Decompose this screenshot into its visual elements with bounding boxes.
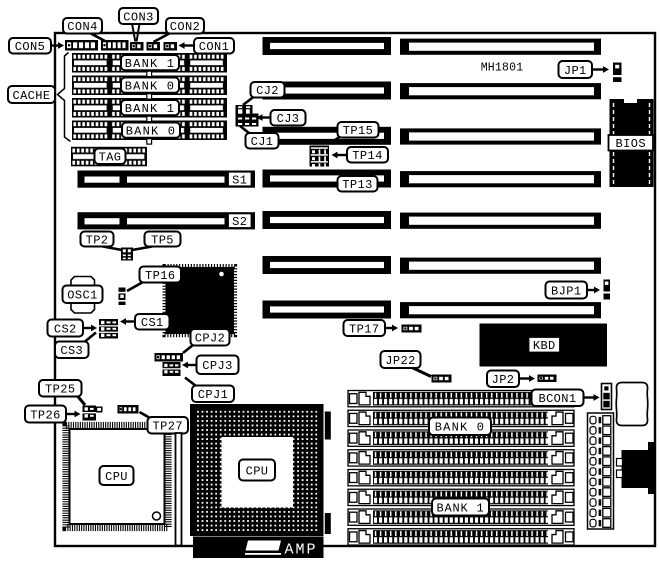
- svg-text:TP2: TP2: [86, 233, 109, 247]
- svg-text:CPJ3: CPJ3: [202, 359, 232, 373]
- svg-text:S2: S2: [232, 215, 247, 229]
- svg-text:BANK 1: BANK 1: [436, 501, 484, 515]
- svg-text:CS3: CS3: [60, 344, 83, 358]
- svg-text:BIOS: BIOS: [616, 137, 646, 151]
- svg-text:CON2: CON2: [170, 20, 200, 34]
- svg-text:TP5: TP5: [151, 233, 174, 247]
- svg-text:JP2: JP2: [492, 373, 515, 387]
- svg-text:CJ2: CJ2: [256, 84, 279, 98]
- svg-text:TP17: TP17: [349, 322, 379, 336]
- svg-text:BANK 0: BANK 0: [125, 79, 175, 93]
- svg-text:TAG: TAG: [99, 151, 122, 165]
- svg-text:CON1: CON1: [199, 40, 229, 54]
- svg-text:BCON1: BCON1: [538, 392, 576, 406]
- svg-text:MH1801: MH1801: [481, 62, 524, 75]
- svg-text:OSC1: OSC1: [67, 289, 97, 303]
- svg-text:JP1: JP1: [564, 64, 587, 78]
- svg-text:CS2: CS2: [54, 322, 77, 336]
- svg-text:CON3: CON3: [123, 10, 153, 24]
- svg-text:CJ3: CJ3: [277, 112, 300, 126]
- svg-text:TP15: TP15: [343, 124, 373, 138]
- svg-text:CACHE: CACHE: [12, 89, 50, 103]
- svg-text:BJP1: BJP1: [551, 284, 581, 298]
- svg-text:CPU: CPU: [105, 470, 128, 484]
- svg-text:BANK 0: BANK 0: [435, 421, 485, 435]
- svg-text:BANK 1: BANK 1: [125, 57, 175, 71]
- svg-text:TP13: TP13: [342, 178, 372, 192]
- svg-text:JP22: JP22: [385, 354, 415, 368]
- svg-text:CPJ2: CPJ2: [195, 332, 225, 346]
- svg-text:TP14: TP14: [352, 149, 382, 163]
- svg-text:BANK 1: BANK 1: [125, 102, 175, 116]
- svg-text:S1: S1: [232, 173, 247, 187]
- svg-text:KBD: KBD: [533, 339, 556, 353]
- svg-text:CJ1: CJ1: [251, 135, 274, 149]
- svg-text:TP27: TP27: [153, 420, 183, 434]
- svg-text:CON5: CON5: [15, 40, 45, 54]
- svg-text:TP26: TP26: [30, 408, 60, 422]
- svg-text:CS1: CS1: [141, 316, 164, 330]
- svg-text:TP16: TP16: [145, 269, 175, 283]
- svg-text:AMP: AMP: [284, 542, 317, 559]
- svg-text:CPU: CPU: [246, 464, 269, 478]
- svg-text:TP25: TP25: [45, 383, 75, 397]
- svg-text:CPJ1: CPJ1: [198, 388, 228, 402]
- svg-text:BANK 0: BANK 0: [126, 124, 176, 138]
- svg-text:CON4: CON4: [67, 20, 97, 34]
